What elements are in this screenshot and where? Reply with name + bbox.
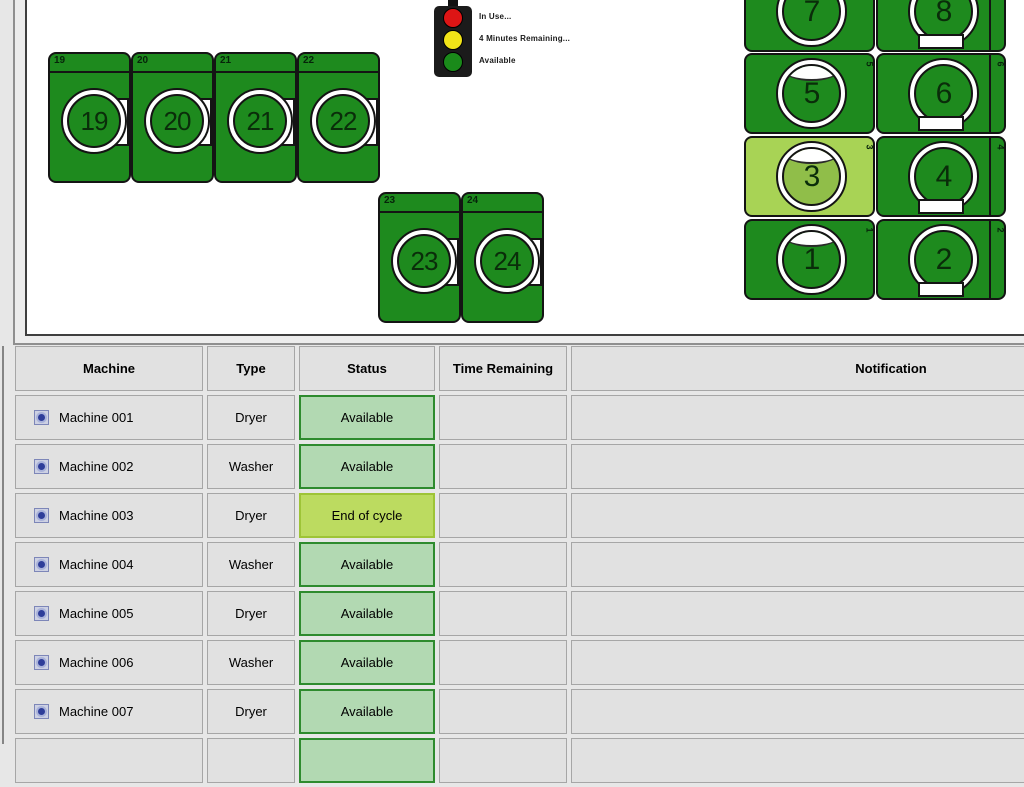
machine-corner-label: 3	[864, 144, 874, 149]
machine-corner-label: 19	[54, 55, 65, 67]
machine-door-icon: 5	[776, 58, 847, 129]
machine-panel-divider	[989, 221, 991, 298]
machine-number: 20	[164, 106, 191, 137]
machine-number: 23	[411, 246, 438, 277]
machine-door-inner: 19	[67, 94, 121, 148]
machine-corner-label: 22	[303, 55, 314, 67]
machine-number: 21	[247, 106, 274, 137]
machine-5[interactable]: 55	[744, 53, 875, 134]
machine-number: 1	[804, 243, 820, 277]
machine-door-icon: 1	[776, 224, 847, 295]
machine-number: 5	[804, 77, 820, 111]
red-light-icon	[443, 8, 463, 28]
notification-cell	[571, 738, 1024, 783]
machine-door-inner: 4	[914, 147, 973, 206]
machine-number: 2	[936, 243, 952, 277]
machine-19[interactable]: 1919	[48, 52, 131, 183]
machine-door-inner: 22	[316, 94, 370, 148]
machine-8[interactable]: 88	[876, 0, 1006, 52]
machine-corner-label: 1	[864, 227, 874, 232]
machine-door-icon: 24	[474, 228, 540, 294]
door-arc-icon	[785, 230, 838, 247]
door-arc-icon	[785, 147, 838, 164]
machine-door-icon: 3	[776, 141, 847, 212]
legend-label-minutes-remaining: 4 Minutes Remaining...	[479, 34, 649, 43]
machine-door-inner: 2	[914, 230, 973, 289]
machine-panel-divider	[989, 138, 991, 215]
machine-number: 22	[330, 106, 357, 137]
machine-number: 6	[936, 77, 952, 111]
machine-number: 24	[494, 246, 521, 277]
machine-door-icon: 7	[776, 0, 847, 47]
machine-6[interactable]: 66	[876, 53, 1006, 134]
machine-7[interactable]: 77	[744, 0, 875, 52]
machine-door-inner: 7	[782, 0, 841, 41]
machine-top-strip: 22	[299, 54, 378, 73]
machine-22[interactable]: 2222	[297, 52, 380, 183]
machine-door-inner: 20	[150, 94, 204, 148]
machine-corner-label: 6	[995, 61, 1005, 66]
machine-door-icon: 21	[227, 88, 293, 154]
machine-door-icon: 23	[391, 228, 457, 294]
detergent-tray-icon	[918, 199, 964, 214]
machine-top-strip: 24	[463, 194, 542, 213]
machine-21[interactable]: 2121	[214, 52, 297, 183]
machine-corner-label: 20	[137, 55, 148, 67]
status-cell	[299, 738, 435, 783]
machine-corner-label: 24	[467, 195, 478, 207]
machine-4[interactable]: 44	[876, 136, 1006, 217]
machine-door-icon: 22	[310, 88, 376, 154]
machine-2[interactable]: 22	[876, 219, 1006, 300]
green-light-icon	[443, 52, 463, 72]
door-arc-icon	[785, 64, 838, 81]
machine-door-inner: 23	[397, 234, 451, 288]
machine-door-inner: 24	[480, 234, 534, 288]
machine-top-strip: 20	[133, 54, 212, 73]
machine-top-strip: 21	[216, 54, 295, 73]
machine-number: 19	[81, 106, 108, 137]
machine-corner-label: 5	[864, 61, 874, 66]
machine-24[interactable]: 2424	[461, 192, 544, 323]
machine-door-inner: 1	[782, 230, 841, 289]
map-machines-layer: 1919202021212222232324247788556633441122	[0, 0, 1024, 739]
machine-door-icon: 20	[144, 88, 210, 154]
machine-number: 8	[936, 0, 952, 29]
machine-corner-label: 2	[995, 227, 1005, 232]
legend-label-available: Available	[479, 56, 649, 65]
machine-panel-divider	[989, 0, 991, 50]
detergent-tray-icon	[918, 116, 964, 131]
machine-number: 4	[936, 160, 952, 194]
machine-corner-label: 23	[384, 195, 395, 207]
machine-20[interactable]: 2020	[131, 52, 214, 183]
legend-label-in-use: In Use...	[479, 12, 649, 21]
yellow-light-icon	[443, 30, 463, 50]
machine-door-inner: 6	[914, 64, 973, 123]
machine-top-strip: 23	[380, 194, 459, 213]
machine-1[interactable]: 11	[744, 219, 875, 300]
machine-panel-divider	[989, 55, 991, 132]
detergent-tray-icon	[918, 34, 964, 49]
machine-door-icon: 19	[61, 88, 127, 154]
machine-number: 7	[804, 0, 820, 29]
machine-door-inner: 3	[782, 147, 841, 206]
machine-corner-label: 4	[995, 144, 1005, 149]
machine-23[interactable]: 2323	[378, 192, 461, 323]
machine-3[interactable]: 33	[744, 136, 875, 217]
detergent-tray-icon	[918, 282, 964, 297]
machine-number: 3	[804, 160, 820, 194]
machine-door-inner: 5	[782, 64, 841, 123]
type-cell	[207, 738, 295, 783]
machine-door-inner: 21	[233, 94, 287, 148]
machine-corner-label: 21	[220, 55, 231, 67]
machine-name-cell	[15, 738, 203, 783]
traffic-light-icon	[434, 6, 472, 77]
table-row	[15, 738, 1024, 783]
time-remaining-cell	[439, 738, 567, 783]
machine-top-strip: 19	[50, 54, 129, 73]
